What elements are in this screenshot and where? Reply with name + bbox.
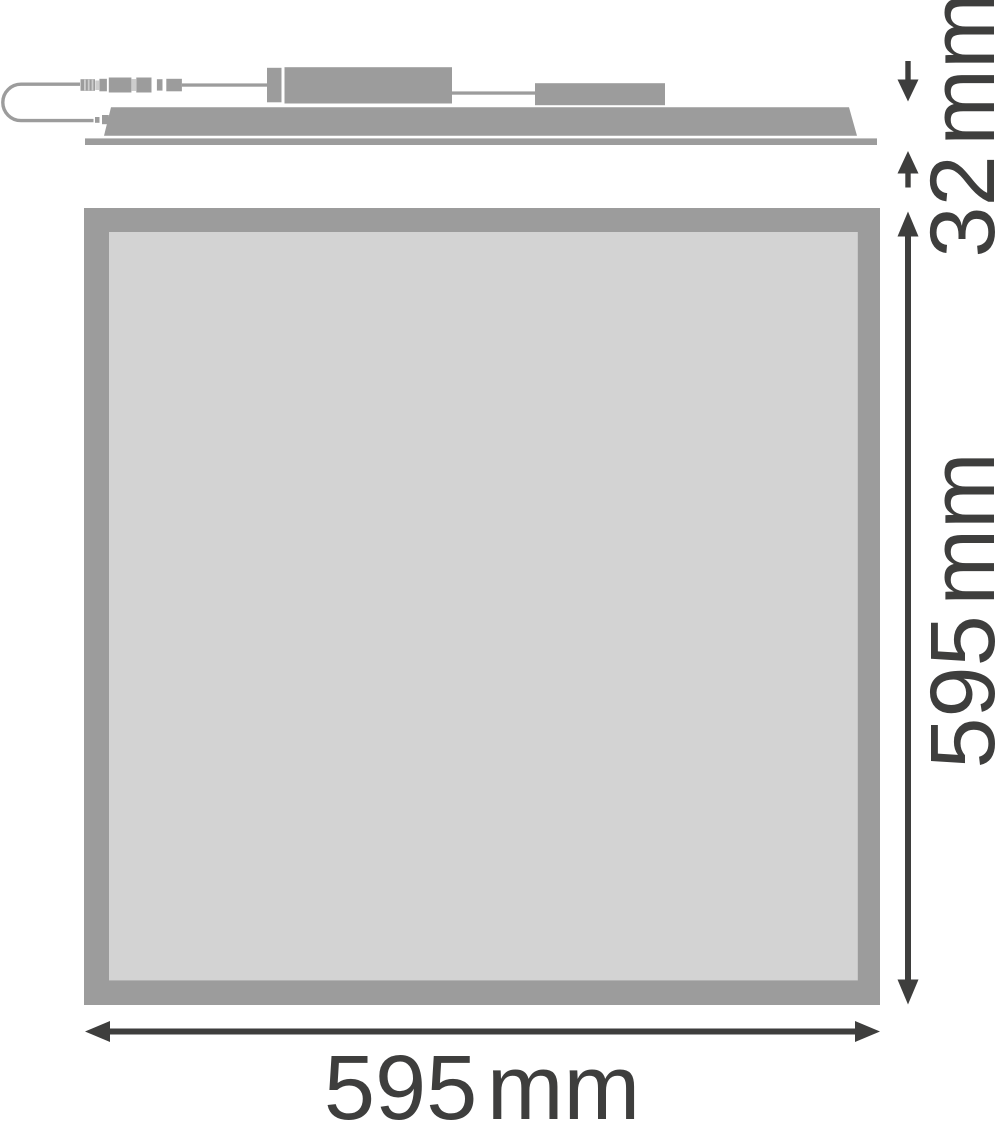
svg-text:595 mm: 595 mm [324, 1037, 640, 1123]
svg-text:32 mm: 32 mm [912, 0, 1000, 258]
svg-text:595 mm: 595 mm [912, 452, 1000, 768]
